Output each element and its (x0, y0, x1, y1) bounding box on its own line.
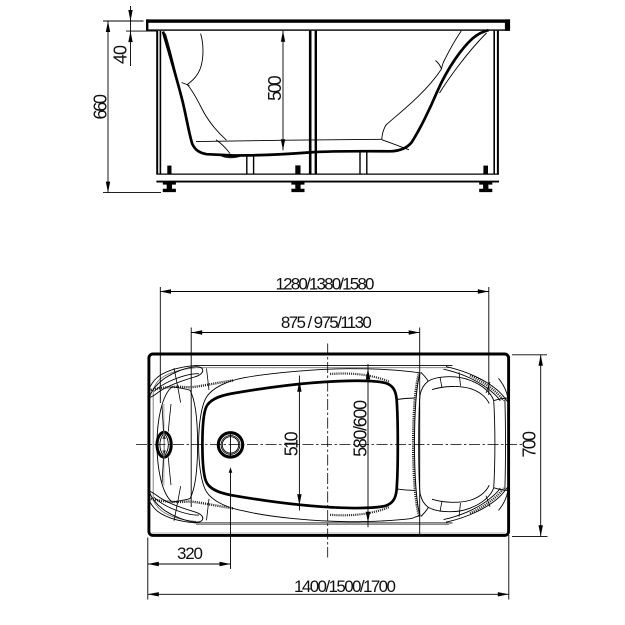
svg-text:40: 40 (111, 45, 131, 64)
svg-text:875 / 975/1130: 875 / 975/1130 (281, 313, 372, 332)
svg-text:1280/1380/1580: 1280/1380/1580 (276, 274, 375, 293)
svg-text:510: 510 (282, 431, 302, 456)
svg-text:320: 320 (177, 544, 203, 563)
svg-text:700: 700 (520, 431, 540, 458)
svg-text:1400/1500/1700: 1400/1500/1700 (294, 577, 396, 596)
svg-text:660: 660 (91, 94, 111, 120)
svg-text:580/600: 580/600 (351, 400, 371, 457)
svg-text:500: 500 (265, 75, 285, 101)
